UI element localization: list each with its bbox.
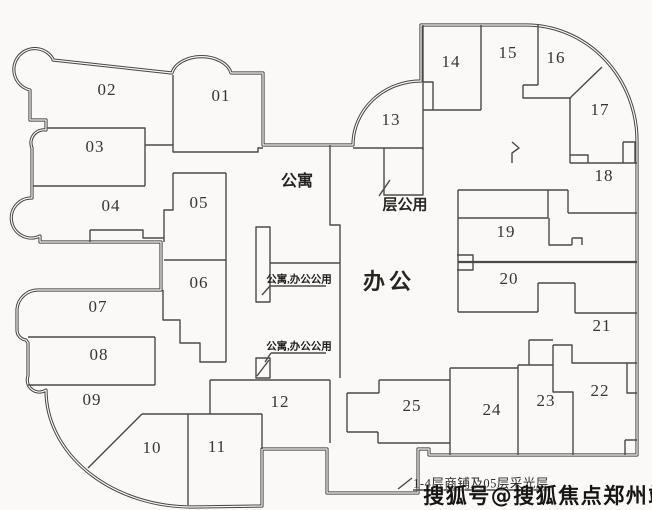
unit-label-23: 23	[537, 391, 556, 411]
internal-walls	[28, 25, 637, 505]
unit-label-13: 13	[382, 110, 401, 130]
unit-label-19: 19	[497, 222, 516, 242]
unit-label-16: 16	[547, 48, 566, 68]
unit-label-11: 11	[208, 437, 226, 457]
unit-label-20: 20	[500, 269, 519, 289]
zone-label-apartment: 公寓	[281, 167, 313, 191]
unit-label-22: 22	[591, 381, 610, 401]
unit-label-06: 06	[190, 273, 209, 293]
unit-label-18: 18	[595, 166, 614, 186]
unit-label-12: 12	[271, 392, 290, 412]
unit-label-02: 02	[98, 80, 117, 100]
unit-label-25: 25	[403, 396, 422, 416]
unit-label-15: 15	[499, 43, 518, 63]
unit-label-17: 17	[591, 100, 610, 120]
unit-label-05: 05	[190, 193, 209, 213]
unit-label-24: 24	[483, 400, 502, 420]
watermark-text: 搜狐号@搜狐焦点郑州站	[423, 480, 652, 510]
unit-label-10: 10	[143, 438, 162, 458]
zone-label-floor-common: 层公用	[382, 194, 427, 215]
unit-label-08: 08	[90, 345, 109, 365]
unit-label-21: 21	[593, 316, 612, 336]
unit-label-01: 01	[212, 86, 231, 106]
callout-apartment-office-common-1: 公寓,办公公用	[266, 272, 332, 287]
unit-label-14: 14	[442, 52, 461, 72]
unit-label-07: 07	[89, 297, 108, 317]
unit-label-09: 09	[83, 390, 102, 410]
unit-label-04: 04	[102, 196, 121, 216]
unit-label-03: 03	[86, 137, 105, 157]
floor-plan: 01 02 03 04 05 06 07 08 09 10 11 12 13 1…	[0, 0, 652, 510]
floorplan-walls-svg	[0, 0, 652, 510]
callout-apartment-office-common-2: 公寓,办公公用	[266, 339, 332, 354]
zone-label-office: 办公	[363, 264, 415, 296]
